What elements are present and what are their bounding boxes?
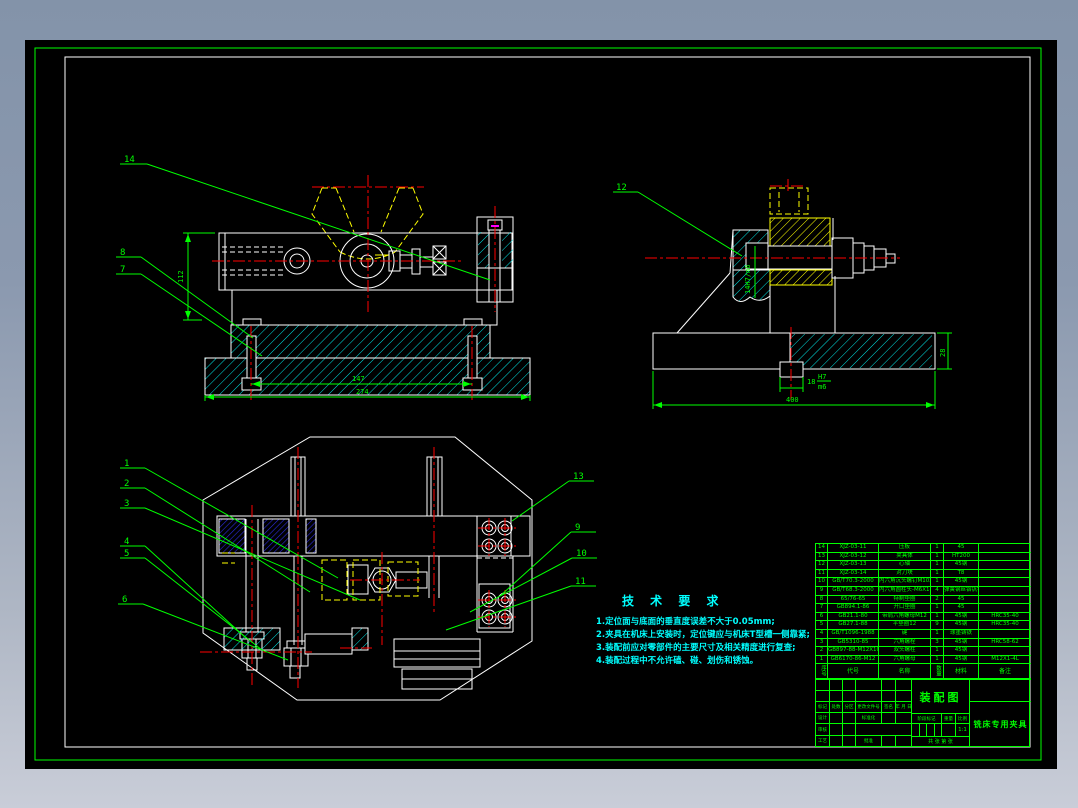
tb-cell bbox=[926, 723, 934, 736]
bom-cell-code: XJZ-03-12 bbox=[828, 553, 879, 562]
tb-cell bbox=[842, 723, 855, 735]
bom-row: 7 GB894.1-86 开口垫圈 1 45 bbox=[816, 604, 1029, 613]
bom-row: 14 XJZ-03-11 压板 1 45 bbox=[816, 544, 1029, 553]
bom-header-name: 名称 bbox=[879, 664, 931, 679]
bom-header-code: 代号 bbox=[828, 664, 879, 679]
bom-cell-name: 对刀块 bbox=[879, 570, 931, 579]
tb-sig-zone: 分区 bbox=[842, 701, 855, 712]
bom-row: 1 GB6170-86-M12 六角螺母 1 45钢 M12X1-4L bbox=[816, 656, 1029, 665]
bom-cell-qty: 1 bbox=[931, 613, 944, 622]
tb-cell bbox=[842, 712, 855, 723]
bom-cell-no: 11 bbox=[816, 570, 828, 579]
bom-cell-code: XJZ-03-13 bbox=[828, 561, 879, 570]
bom-header-remark: 备注 bbox=[979, 664, 1031, 679]
tb-cell bbox=[895, 712, 911, 723]
bom-cell-code: GB5310-85 bbox=[828, 639, 879, 648]
bom-cell-material: 45钢 bbox=[944, 621, 979, 630]
bom-cell-no: 12 bbox=[816, 561, 828, 570]
bom-cell-qty: 1 bbox=[931, 647, 944, 656]
bom-cell-qty: 1 bbox=[931, 553, 944, 562]
bom-cell-qty: 1 bbox=[931, 544, 944, 553]
tb-cell bbox=[829, 723, 842, 735]
bom-cell-qty: 1 bbox=[931, 604, 944, 613]
bom-cell-remark bbox=[979, 570, 1031, 579]
tb-cell bbox=[895, 690, 911, 701]
bom-row: 4 GB/T1096-1988 键 1 球墨铸铁 bbox=[816, 630, 1029, 639]
bom-cell-qty: 9 bbox=[931, 621, 944, 630]
bom-cell-code: GB6170-86-M12 bbox=[828, 656, 879, 665]
tb-sig-date: 年 月 日 bbox=[895, 701, 911, 712]
bom-cell-name: 特制垫圈 bbox=[879, 596, 931, 605]
bom-cell-remark bbox=[979, 578, 1031, 587]
bom-cell-no: 10 bbox=[816, 578, 828, 587]
bom-cell-remark bbox=[979, 587, 1031, 596]
bom-cell-qty: 1 bbox=[931, 570, 944, 579]
tb-role-process: 工艺 bbox=[816, 735, 829, 746]
bom-rows: 14 XJZ-03-11 压板 1 45 13 XJZ-03-12 夹具体 1 … bbox=[816, 544, 1029, 664]
bom-cell-code: GB/T68.3-2000 bbox=[828, 587, 879, 596]
bom-cell-no: 5 bbox=[816, 621, 828, 630]
bom-cell-remark: HRC58-62 bbox=[979, 639, 1031, 648]
bom-cell-qty: 1 bbox=[931, 630, 944, 639]
bom-cell-name: 心轴 bbox=[879, 561, 931, 570]
dim-front-inner-width: 147 bbox=[352, 375, 365, 383]
bom-cell-material: 45钢 bbox=[944, 656, 979, 665]
tb-cell bbox=[881, 735, 895, 746]
bom-cell-name: 六角螺母 bbox=[879, 656, 931, 665]
bom-row: 9 GB/T68.3-2000 内六角圆柱头-M6X1-8 4 弹簧钢丝铬钒钢 bbox=[816, 587, 1029, 596]
tech-req-line-1: 1.定位面与底面的垂直度误差不大于0.05mm; bbox=[596, 616, 836, 629]
tb-cell bbox=[895, 679, 911, 690]
tb-cell bbox=[881, 679, 895, 690]
bom-cell-remark bbox=[979, 596, 1031, 605]
bom-cell-no: 14 bbox=[816, 544, 828, 553]
tb-cell bbox=[816, 690, 829, 701]
bom-cell-material: 弹簧钢丝铬钒钢 bbox=[944, 587, 979, 596]
tb-sig-signature: 签名 bbox=[881, 701, 895, 712]
dim-base-width: 400 bbox=[786, 396, 799, 404]
bom-cell-remark: HRC35-40 bbox=[979, 621, 1031, 630]
bom-cell-qty: 4 bbox=[931, 587, 944, 596]
balloon-10: 10 bbox=[576, 549, 587, 559]
bom-cell-name: 双头螺柱 bbox=[879, 647, 931, 656]
bom-cell-no: 8 bbox=[816, 596, 828, 605]
bom-cell-remark: HRC35-40 bbox=[979, 613, 1031, 622]
bom-row: 5 GB27.1-88 平垫圈12 9 45钢 HRC35-40 bbox=[816, 621, 1029, 630]
bom-cell-code: GB894.1-86 bbox=[828, 604, 879, 613]
tb-cell bbox=[829, 679, 842, 690]
balloon-6: 6 bbox=[122, 595, 127, 605]
bom-cell-remark bbox=[979, 561, 1031, 570]
bom-cell-remark: M12X1-4L bbox=[979, 656, 1031, 665]
tb-cell bbox=[842, 690, 855, 701]
bom-cell-remark bbox=[979, 544, 1031, 553]
bom-cell-material: T8 bbox=[944, 570, 979, 579]
balloon-5: 5 bbox=[124, 549, 129, 559]
tb-cell bbox=[919, 723, 926, 736]
tb-cell bbox=[881, 690, 895, 701]
tech-req-line-2: 2.夹具在机床上安装时，定位键应与机床T型槽一侧靠紧; bbox=[596, 629, 836, 642]
tb-cell bbox=[881, 712, 895, 723]
bom-cell-material: 45 bbox=[944, 604, 979, 613]
bom-cell-material: 球墨铸铁 bbox=[944, 630, 979, 639]
bom-row: 6 GB21.1-80 带肩六角螺母M12 1 45钢 HRC35-40 bbox=[816, 613, 1029, 622]
product-name: 铣床专用夹具 bbox=[969, 701, 1031, 746]
bom-cell-name: 带肩六角螺母M12 bbox=[879, 613, 931, 622]
bom-cell-code: GB21.1-80 bbox=[828, 613, 879, 622]
dim-key-fit-top: H7 bbox=[818, 373, 826, 381]
bom-cell-no: 1 bbox=[816, 656, 828, 665]
tb-cell bbox=[829, 735, 842, 746]
tb-sig-mark: 标记 bbox=[816, 701, 829, 712]
bom-cell-name: 内六角沉头螺钉M10X1 bbox=[879, 578, 931, 587]
technical-requirements: 技 术 要 求 1.定位面与底面的垂直度误差不大于0.05mm; 2.夹具在机床… bbox=[596, 592, 836, 668]
bom-cell-code: XJZ-03-11 bbox=[828, 544, 879, 553]
bom-cell-remark bbox=[979, 553, 1031, 562]
bom-cell-qty: 2 bbox=[931, 596, 944, 605]
bom-cell-no: 2 bbox=[816, 647, 828, 656]
bom-cell-material: 45钢 bbox=[944, 613, 979, 622]
bom-row: 12 XJZ-03-13 心轴 1 45钢 bbox=[816, 561, 1029, 570]
bom-header: 序号 代号 名称 数量 材料 备注 bbox=[816, 664, 1029, 679]
bom-cell-name: 六角螺栓 bbox=[879, 639, 931, 648]
tb-role-standard: 标准化 bbox=[855, 712, 881, 723]
drawing-title: 装配图 bbox=[911, 679, 969, 713]
balloon-8: 8 bbox=[120, 248, 125, 258]
bom-row: 10 GB/T70.3-2000 内六角沉头螺钉M10X1 1 45钢 bbox=[816, 578, 1029, 587]
bom-cell-code: GB897-88-M12X105 bbox=[828, 647, 879, 656]
bom-cell-material: 45钢 bbox=[944, 647, 979, 656]
tb-cell bbox=[842, 679, 855, 690]
bom-cell-remark bbox=[979, 604, 1031, 613]
dim-key-fit-bot: m6 bbox=[818, 383, 826, 391]
tb-role-approve: 批准 bbox=[855, 735, 881, 746]
bom-cell-qty: 1 bbox=[931, 561, 944, 570]
balloon-7: 7 bbox=[120, 265, 125, 275]
bom-cell-code: GB27.1-88 bbox=[828, 621, 879, 630]
tb-sig-count: 处数 bbox=[829, 701, 842, 712]
bom-cell-name: 内六角圆柱头-M6X1-8 bbox=[879, 587, 931, 596]
bom-row: 11 XJZ-03-14 对刀块 1 T8 bbox=[816, 570, 1029, 579]
tb-stage-label: 阶段标记 bbox=[911, 713, 941, 723]
balloon-14: 14 bbox=[124, 155, 135, 165]
bom-cell-qty: 3 bbox=[931, 639, 944, 648]
balloon-13: 13 bbox=[573, 472, 584, 482]
bom-cell-no: 3 bbox=[816, 639, 828, 648]
tb-cell bbox=[829, 712, 842, 723]
tb-scale-label: 比例 bbox=[955, 713, 969, 723]
balloon-9: 9 bbox=[575, 523, 580, 533]
technical-requirements-title: 技 术 要 求 bbox=[622, 592, 836, 609]
dim-front-total-width: 274 bbox=[356, 388, 369, 396]
tb-scale-value: 1:1 bbox=[955, 723, 969, 736]
balloon-12: 12 bbox=[616, 183, 627, 193]
tb-role-audit: 审核 bbox=[816, 723, 829, 735]
tb-cell bbox=[969, 679, 1031, 701]
balloon-11: 11 bbox=[575, 577, 586, 587]
bom-cell-code: 65/76-65 bbox=[828, 596, 879, 605]
balloon-4: 4 bbox=[124, 537, 129, 547]
bom-cell-material: HT200 bbox=[944, 553, 979, 562]
tb-cell bbox=[895, 735, 911, 746]
tb-cell bbox=[855, 690, 881, 701]
tb-sig-docno: 更改文件号 bbox=[855, 701, 881, 712]
bom-header-no: 序号 bbox=[816, 664, 828, 679]
bom-cell-no: 6 bbox=[816, 613, 828, 622]
tb-cell bbox=[842, 735, 855, 746]
bom-cell-code: XJZ-03-14 bbox=[828, 570, 879, 579]
bom-row: 13 XJZ-03-12 夹具体 1 HT200 bbox=[816, 553, 1029, 562]
bom-cell-name: 压板 bbox=[879, 544, 931, 553]
cad-viewer-window: 112 147 274 14 8 7 bbox=[0, 0, 1078, 808]
bom-cell-material: 45钢 bbox=[944, 639, 979, 648]
bom-cell-material: 45 bbox=[944, 544, 979, 553]
bom-cell-name: 开口垫圈 bbox=[879, 604, 931, 613]
bom-row: 3 GB5310-85 六角螺栓 3 45钢 HRC58-62 bbox=[816, 639, 1029, 648]
bom-cell-no: 9 bbox=[816, 587, 828, 596]
balloon-3: 3 bbox=[124, 499, 129, 509]
bom-cell-qty: 1 bbox=[931, 578, 944, 587]
bom-cell-code: GB/T1096-1988 bbox=[828, 630, 879, 639]
tb-cell bbox=[911, 723, 919, 736]
bom-cell-material: 45钢 bbox=[944, 578, 979, 587]
bom-row: 2 GB897-88-M12X105 双头螺柱 1 45钢 bbox=[816, 647, 1029, 656]
title-block: 标记 处数 分区 更改文件号 签名 年 月 日 设计 标准化 审核 工艺 批准 … bbox=[816, 679, 1029, 746]
bom-header-qty: 数量 bbox=[931, 664, 944, 679]
tech-req-line-3: 3.装配前应对零部件的主要尺寸及相关精度进行复查; bbox=[596, 642, 836, 655]
bom-cell-remark bbox=[979, 647, 1031, 656]
tb-cell bbox=[941, 723, 955, 736]
bom-cell-remark bbox=[979, 630, 1031, 639]
tech-req-line-4: 4.装配过程中不允许磕、碰、划伤和锈蚀。 bbox=[596, 655, 836, 668]
dim-base-height: 28 bbox=[939, 349, 947, 357]
bill-of-materials: 14 XJZ-03-11 压板 1 45 13 XJZ-03-12 夹具体 1 … bbox=[815, 543, 1030, 747]
tb-weight-label: 重量 bbox=[941, 713, 955, 723]
bom-row: 8 65/76-65 特制垫圈 2 45 bbox=[816, 596, 1029, 605]
dim-front-height: 112 bbox=[177, 270, 185, 283]
tb-cell bbox=[855, 723, 911, 735]
tb-cell bbox=[934, 723, 941, 736]
balloon-2: 2 bbox=[124, 479, 129, 489]
bom-cell-qty: 1 bbox=[931, 656, 944, 665]
bom-cell-no: 13 bbox=[816, 553, 828, 562]
tb-cell bbox=[829, 690, 842, 701]
bom-cell-material: 45钢 bbox=[944, 561, 979, 570]
bom-cell-no: 4 bbox=[816, 630, 828, 639]
bom-cell-name: 平垫圈12 bbox=[879, 621, 931, 630]
tb-sheet-count: 共 张 第 张 bbox=[911, 736, 969, 746]
dim-side-bore: 14H7/m6 bbox=[744, 264, 752, 294]
tb-cell bbox=[816, 679, 829, 690]
bom-cell-material: 45 bbox=[944, 596, 979, 605]
bom-cell-no: 7 bbox=[816, 604, 828, 613]
bom-cell-name: 夹具体 bbox=[879, 553, 931, 562]
balloon-1: 1 bbox=[124, 459, 129, 469]
dim-key-width: 18 bbox=[807, 378, 815, 386]
tb-cell bbox=[855, 679, 881, 690]
tb-role-design: 设计 bbox=[816, 712, 829, 723]
bom-cell-name: 键 bbox=[879, 630, 931, 639]
bom-header-material: 材料 bbox=[944, 664, 979, 679]
bom-cell-code: GB/T70.3-2000 bbox=[828, 578, 879, 587]
